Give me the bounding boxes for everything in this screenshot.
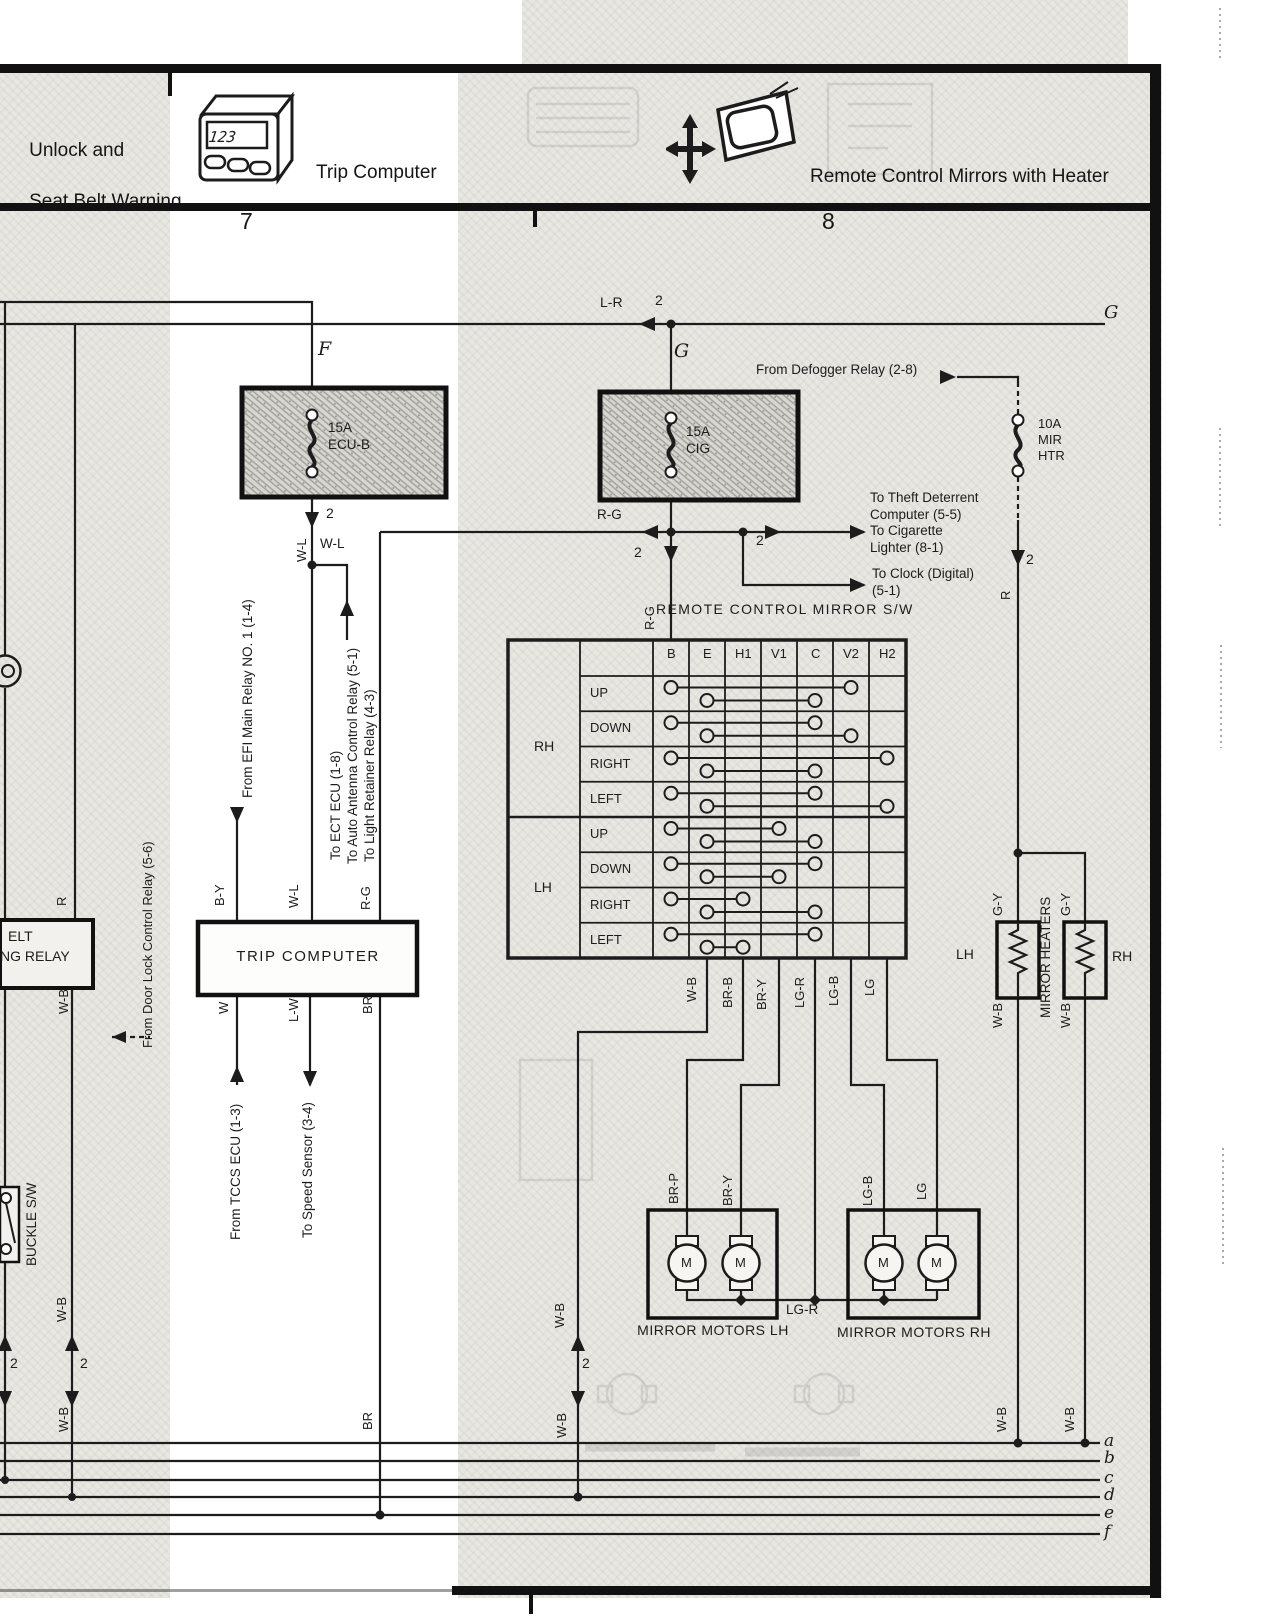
wire-label-w: W	[216, 1002, 232, 1014]
fuse-mir-htr-label: 10A MIR HTR	[1038, 416, 1065, 464]
heaters-title: MIRROR HEATERS	[1038, 897, 1055, 1018]
note-tccs: From TCCS ECU (1-3)	[228, 1104, 245, 1240]
qty-2-mir: 2	[1026, 551, 1034, 568]
wire-label-by: B-Y	[212, 884, 228, 906]
switch-col-E: E	[703, 646, 712, 662]
fuse-cig-label: 15A CIG	[686, 424, 710, 457]
wire-label-br: BR	[360, 996, 376, 1014]
wire-label-rg-table: R-G	[642, 606, 658, 630]
switch-col-H2: H2	[879, 646, 896, 662]
wire-label-wb-e: W-B	[684, 977, 700, 1002]
switch-col-H1: H1	[735, 646, 752, 662]
note-theft: To Theft Deterrent Computer (5-5) To Cig…	[870, 490, 979, 557]
wire-label-lg: LG	[862, 979, 878, 996]
motor-m-2: M	[735, 1255, 746, 1271]
wire-label-wb-brh: W-B	[1062, 1407, 1078, 1432]
fuse-ecu-b-label: 15A ECU-B	[328, 420, 370, 453]
wire-label-brb: BR-B	[720, 977, 736, 1008]
wire-label-bry-m: BR-Y	[720, 1175, 736, 1206]
wire-label-rg2: R-G	[358, 886, 374, 910]
note-light: To Light Retainer Relay (4-3)	[362, 689, 379, 862]
switch-row-4-up: UP	[590, 826, 608, 842]
wire-label-wb-l2: W-B	[54, 1297, 70, 1322]
wire-label-wb-hrh: W-B	[1058, 1003, 1074, 1028]
annotation-layer: L-R2GFGFrom Defogger Relay (2-8)15A ECU-…	[0, 0, 1280, 1618]
heater-lh-label: LH	[956, 946, 974, 963]
motor-m-3: M	[878, 1255, 889, 1271]
note-speed: To Speed Sensor (3-4)	[300, 1102, 317, 1238]
motor-m-1: M	[681, 1255, 692, 1271]
note-clock: To Clock (Digital) (5-1)	[872, 566, 974, 599]
wire-label-brp-m: BR-P	[666, 1173, 682, 1204]
switch-col-B: B	[667, 646, 676, 662]
qty-2-left2: 2	[80, 1355, 88, 1372]
switch-row-0-up: UP	[590, 685, 608, 701]
wire-label-lr: L-R	[600, 294, 623, 311]
bus-letter-b: b	[1104, 1448, 1115, 1469]
wire-label-wb-mid1: W-B	[552, 1303, 568, 1328]
bus-letter-f: f	[1104, 1522, 1110, 1543]
motor-m-4: M	[931, 1255, 942, 1271]
wire-label-wl-h: W-L	[320, 536, 345, 553]
switch-title: REMOTE CONTROL MIRROR S/W	[656, 601, 914, 618]
wire-label-wl2: W-L	[286, 884, 302, 908]
note-antenna: To Auto Antenna Control Relay (5-1)	[345, 648, 362, 864]
node-g-right: G	[1104, 302, 1118, 324]
heater-rh-label: RH	[1112, 948, 1132, 965]
bus-letter-e: e	[1104, 1503, 1114, 1524]
buckle-sw-label: BUCKLE S/W	[24, 1183, 41, 1266]
wire-label-rg-h: R-G	[597, 507, 622, 524]
switch-group-lh: LH	[534, 879, 552, 896]
qty-2-mid: 2	[582, 1355, 590, 1372]
switch-col-V1: V1	[771, 646, 787, 662]
switch-row-5-down: DOWN	[590, 861, 631, 877]
wire-label-r-mir: R	[998, 591, 1014, 600]
switch-col-C: C	[811, 646, 820, 662]
qty-2-left1: 2	[10, 1355, 18, 1372]
wire-label-br-bot: BR	[360, 1412, 376, 1430]
wire-label-bry: BR-Y	[754, 979, 770, 1010]
wire-label-wb-blh: W-B	[994, 1407, 1010, 1432]
switch-row-2-right: RIGHT	[590, 756, 630, 772]
wire-label-wb-hlh: W-B	[990, 1003, 1006, 1028]
note-doorlock: From Door Lock Control Relay (5-6)	[140, 841, 156, 1048]
wire-label-gy-lh: G-Y	[990, 893, 1006, 916]
node-f: F	[318, 338, 331, 362]
qty-2-rg-down: 2	[634, 544, 642, 561]
relay-label-line1: ELT	[8, 928, 33, 945]
switch-row-1-down: DOWN	[590, 720, 631, 736]
wiring-diagram-page: Unlock and Seat Belt Warning 123 Trip Co…	[0, 0, 1280, 1618]
wire-label-lgb-m: LG-B	[860, 1176, 876, 1206]
wire-label-r-relay: R	[54, 897, 70, 906]
qty-2-ecub: 2	[326, 505, 334, 522]
wire-label-lgr: LG-R	[792, 977, 808, 1008]
qty-2-rg-right: 2	[756, 532, 764, 549]
node-g: G	[674, 340, 689, 364]
wire-label-lgb: LG-B	[826, 976, 842, 1006]
wire-label-wb-relay: W-B	[56, 989, 72, 1014]
switch-row-7-left: LEFT	[590, 932, 622, 948]
switch-col-V2: V2	[843, 646, 859, 662]
relay-label-line2: NG RELAY	[0, 948, 70, 965]
wire-label-lgr-h: LG-R	[786, 1302, 818, 1319]
switch-row-3-left: LEFT	[590, 791, 622, 807]
qty-2-lr: 2	[655, 292, 663, 309]
note-ect: To ECT ECU (1-8)	[328, 751, 345, 860]
wire-label-wb-mid2: W-B	[554, 1413, 570, 1438]
note-defogger: From Defogger Relay (2-8)	[756, 362, 917, 379]
wire-label-wb-l3: W-B	[56, 1407, 72, 1432]
note-efi: From EFI Main Relay NO. 1 (1-4)	[240, 599, 257, 798]
wire-label-lw: L-W	[286, 998, 302, 1022]
switch-group-rh: RH	[534, 738, 554, 755]
switch-row-6-right: RIGHT	[590, 897, 630, 913]
wire-label-gy-rh: G-Y	[1058, 893, 1074, 916]
wire-label-lg-m: LG	[914, 1183, 930, 1200]
wire-label-wl-rot: W-L	[294, 538, 310, 562]
